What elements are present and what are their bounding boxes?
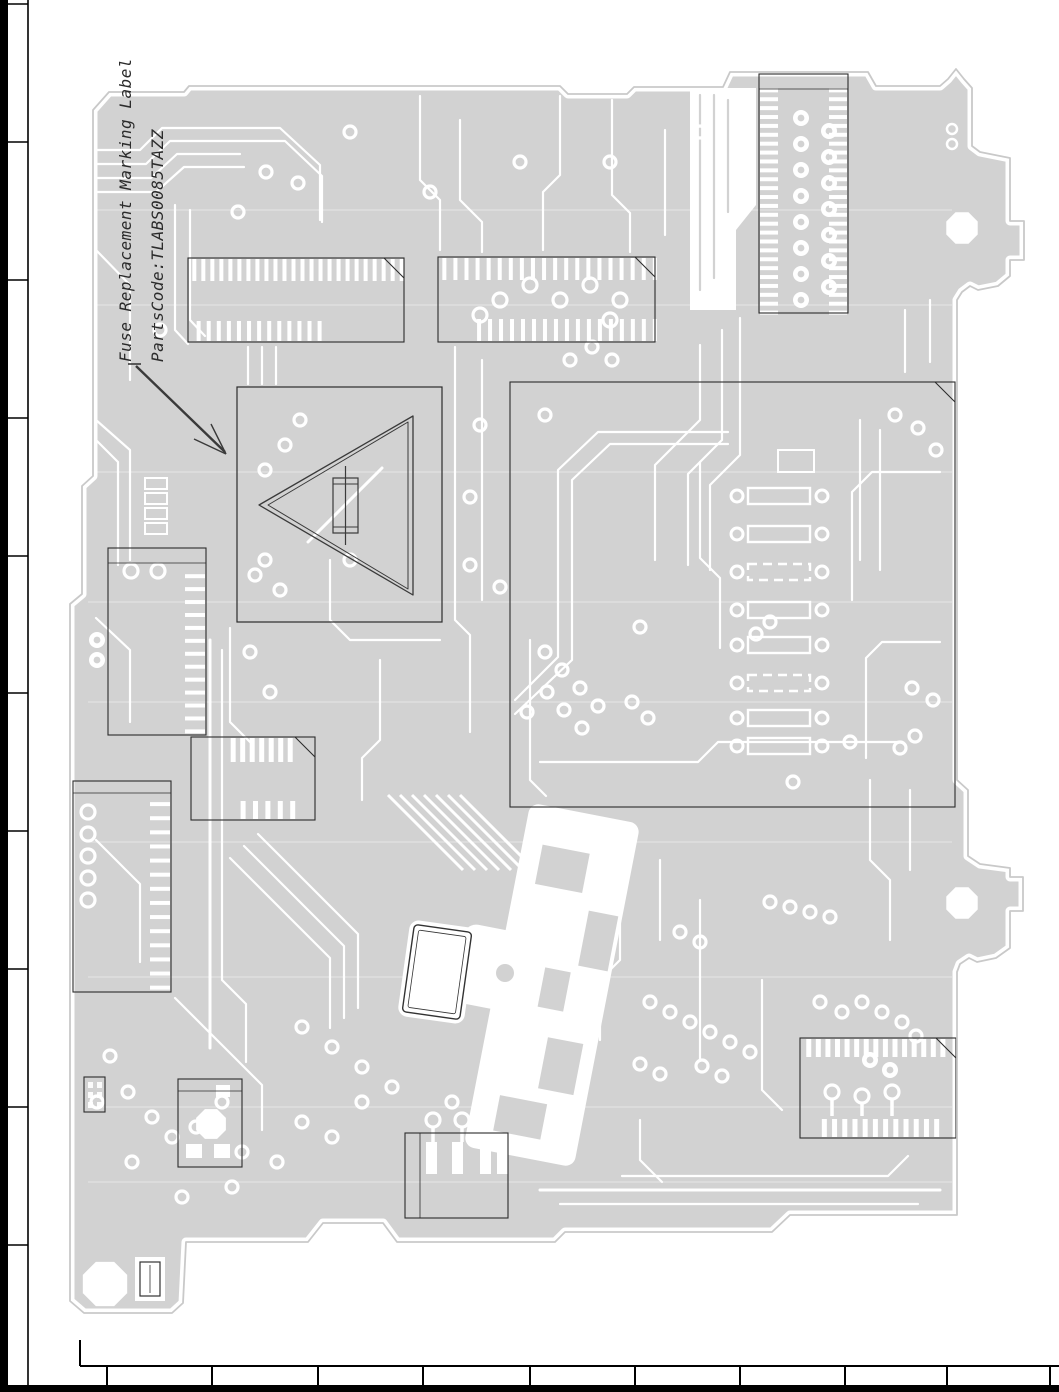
pin-pad bbox=[760, 239, 778, 243]
pin-pad bbox=[543, 319, 547, 341]
pad-hole bbox=[94, 657, 101, 664]
pin-pad bbox=[829, 284, 847, 288]
pin-pad bbox=[231, 738, 236, 762]
pin-pad bbox=[829, 275, 847, 279]
ic-pad bbox=[778, 450, 814, 472]
pin-pad bbox=[210, 259, 214, 281]
pin-pad bbox=[873, 1119, 878, 1137]
pin-pad bbox=[883, 1119, 888, 1137]
pin-pad bbox=[185, 652, 205, 656]
pin-pad bbox=[842, 1119, 847, 1137]
pin-pad bbox=[150, 830, 170, 834]
pin-pad bbox=[464, 258, 468, 280]
pin-pad bbox=[921, 1039, 926, 1057]
pin-pad bbox=[382, 259, 386, 281]
pin-pad bbox=[185, 600, 205, 604]
pin-pad bbox=[185, 587, 205, 591]
pin-pad bbox=[265, 801, 270, 819]
pin-pad bbox=[575, 258, 579, 280]
slot-pad bbox=[426, 1142, 437, 1174]
pin-pad bbox=[542, 258, 546, 280]
pin-pad bbox=[883, 1039, 888, 1057]
pin-pad bbox=[192, 259, 196, 281]
slot-pad bbox=[497, 1142, 508, 1174]
pin-pad bbox=[328, 259, 332, 281]
pin-pad bbox=[346, 259, 350, 281]
pin-pad bbox=[273, 259, 277, 281]
pin-pad bbox=[288, 738, 293, 762]
pin-pad bbox=[553, 258, 557, 280]
pad-hole bbox=[798, 193, 805, 200]
pin-pad bbox=[609, 258, 613, 280]
pin-pad bbox=[829, 239, 847, 243]
pin-pad bbox=[373, 259, 377, 281]
pin-pad bbox=[609, 319, 613, 341]
slot-pad bbox=[186, 1144, 202, 1158]
pin-pad bbox=[829, 222, 847, 226]
pin-pad bbox=[364, 259, 368, 281]
pin-pad bbox=[829, 257, 847, 261]
pin-pad bbox=[642, 319, 646, 341]
pin-pad bbox=[278, 801, 283, 819]
pin-pad bbox=[509, 258, 513, 280]
pin-pad bbox=[914, 1119, 919, 1137]
pin-pad bbox=[576, 319, 580, 341]
shield-hole bbox=[196, 1109, 226, 1139]
pin-pad bbox=[185, 613, 205, 617]
pin-pad bbox=[241, 801, 246, 819]
pin-pad bbox=[852, 1119, 857, 1137]
pin-pad bbox=[940, 1039, 945, 1057]
pin-pad bbox=[201, 259, 205, 281]
pin-pad bbox=[240, 738, 245, 762]
pin-pad bbox=[760, 284, 778, 288]
slot-pad bbox=[480, 1142, 491, 1174]
pad-hole bbox=[887, 1067, 894, 1074]
pin-pad bbox=[760, 266, 778, 270]
pin-pad bbox=[863, 1119, 868, 1137]
pin-pad bbox=[760, 115, 778, 119]
pin-pad bbox=[893, 1119, 898, 1137]
pin-pad bbox=[150, 986, 170, 990]
pin-pad bbox=[760, 213, 778, 217]
pin-pad bbox=[760, 222, 778, 226]
pin-pad bbox=[255, 259, 259, 281]
pin-pad bbox=[246, 259, 250, 281]
pin-pad bbox=[237, 321, 241, 341]
pin-pad bbox=[829, 159, 847, 163]
pin-pad bbox=[291, 259, 295, 281]
pin-pad bbox=[829, 213, 847, 217]
fuse-label-line2: PartsCode:TLABS0085TAZZ bbox=[148, 129, 167, 362]
pin-pad bbox=[499, 319, 503, 341]
mounting-hole bbox=[946, 212, 977, 243]
pin-pad bbox=[185, 704, 205, 708]
pin-pad bbox=[185, 729, 205, 733]
pin-pad bbox=[760, 204, 778, 208]
pin-pad bbox=[760, 257, 778, 261]
pin-pad bbox=[822, 1119, 827, 1137]
pin-pad bbox=[760, 97, 778, 101]
pin-pad bbox=[597, 258, 601, 280]
pin-pad bbox=[760, 106, 778, 110]
pin-pad bbox=[912, 1039, 917, 1057]
mounting-hole bbox=[83, 1262, 127, 1306]
pad-hole bbox=[867, 1057, 874, 1064]
pin-pad bbox=[150, 802, 170, 806]
pin-pad bbox=[892, 1039, 897, 1057]
slot-pad bbox=[214, 1144, 230, 1158]
pin-pad bbox=[259, 738, 264, 762]
pin-pad bbox=[308, 321, 312, 341]
pin-pad bbox=[829, 248, 847, 252]
pin-pad bbox=[150, 957, 170, 961]
pin-pad bbox=[829, 231, 847, 235]
pin-pad bbox=[760, 186, 778, 190]
pin-pad bbox=[185, 678, 205, 682]
pin-pad bbox=[319, 259, 323, 281]
pad-stack bbox=[145, 478, 167, 489]
pin-pad bbox=[253, 801, 258, 819]
pad-stack bbox=[145, 493, 167, 504]
pin-pad bbox=[829, 177, 847, 181]
pin-pad bbox=[760, 168, 778, 172]
pin-pad bbox=[829, 293, 847, 297]
pin-pad bbox=[806, 1039, 811, 1057]
dash-pad bbox=[88, 1092, 93, 1098]
pin-pad bbox=[150, 972, 170, 976]
pin-pad bbox=[631, 319, 635, 341]
pin-pad bbox=[829, 115, 847, 119]
pin-pad bbox=[864, 1039, 869, 1057]
pin-pad bbox=[587, 319, 591, 341]
pin-pad bbox=[318, 321, 322, 341]
pin-pad bbox=[631, 258, 635, 280]
pin-pad bbox=[150, 943, 170, 947]
pin-pad bbox=[488, 319, 492, 341]
pin-pad bbox=[150, 873, 170, 877]
pin-pad bbox=[301, 259, 305, 281]
pin-pad bbox=[564, 258, 568, 280]
pin-pad bbox=[269, 738, 274, 762]
pad-hole bbox=[798, 219, 805, 226]
pin-pad bbox=[150, 859, 170, 863]
pad-hole bbox=[798, 271, 805, 278]
hole-pad bbox=[496, 964, 514, 982]
dash-pad bbox=[88, 1082, 93, 1088]
pin-pad bbox=[355, 259, 359, 281]
pin-pad bbox=[825, 1039, 830, 1057]
crystal-component bbox=[402, 924, 472, 1019]
pin-pad bbox=[829, 151, 847, 155]
pcb-pattern-diagram-page: Fuse Replacement Marking Label PartsCode… bbox=[0, 0, 1059, 1392]
pin-pad bbox=[150, 901, 170, 905]
pin-pad bbox=[219, 259, 223, 281]
pin-pad bbox=[565, 319, 569, 341]
pin-pad bbox=[228, 259, 232, 281]
pin-pad bbox=[829, 302, 847, 306]
pin-pad bbox=[297, 321, 301, 341]
pcb-board bbox=[70, 69, 1024, 1313]
pin-pad bbox=[829, 142, 847, 146]
pin-pad bbox=[185, 626, 205, 630]
frame-bottom-bar bbox=[0, 1385, 1059, 1392]
pin-pad bbox=[620, 319, 624, 341]
pin-pad bbox=[532, 319, 536, 341]
pin-pad bbox=[642, 258, 646, 280]
pad-hole bbox=[826, 154, 833, 161]
pin-pad bbox=[237, 259, 241, 281]
pin-pad bbox=[760, 133, 778, 137]
fuse-label-line1: Fuse Replacement Marking Label bbox=[116, 58, 135, 362]
mounting-hole bbox=[946, 887, 977, 918]
pin-pad bbox=[816, 1039, 821, 1057]
pin-pad bbox=[250, 738, 255, 762]
pin-pad bbox=[247, 321, 251, 341]
pin-pad bbox=[476, 258, 480, 280]
pin-pad bbox=[902, 1039, 907, 1057]
frame-left-bar bbox=[0, 0, 8, 1392]
pad-hole bbox=[798, 245, 805, 252]
pin-pad bbox=[310, 259, 314, 281]
pin-pad bbox=[760, 151, 778, 155]
pin-pad bbox=[185, 639, 205, 643]
pin-pad bbox=[873, 1039, 878, 1057]
pin-pad bbox=[217, 321, 221, 341]
pin-pad bbox=[760, 275, 778, 279]
pin-pad bbox=[257, 321, 261, 341]
pin-pad bbox=[185, 716, 205, 720]
pin-pad bbox=[498, 258, 502, 280]
pin-pad bbox=[760, 195, 778, 199]
pin-pad bbox=[487, 258, 491, 280]
pad-hole bbox=[798, 297, 805, 304]
pin-pad bbox=[620, 258, 624, 280]
pin-pad bbox=[554, 319, 558, 341]
pin-pad bbox=[150, 915, 170, 919]
pad-stack bbox=[145, 508, 167, 519]
pin-pad bbox=[521, 319, 525, 341]
pin-pad bbox=[185, 574, 205, 578]
pin-pad bbox=[829, 168, 847, 172]
pin-pad bbox=[267, 321, 271, 341]
pin-pad bbox=[760, 302, 778, 306]
pin-pad bbox=[829, 204, 847, 208]
pin-pad bbox=[337, 259, 341, 281]
dash-pad bbox=[97, 1102, 102, 1108]
pin-pad bbox=[760, 231, 778, 235]
slot-pad bbox=[452, 1142, 463, 1174]
pin-pad bbox=[207, 321, 211, 341]
pin-pad bbox=[934, 1119, 939, 1137]
pin-pad bbox=[453, 258, 457, 280]
pin-pad bbox=[197, 321, 201, 341]
pin-pad bbox=[442, 258, 446, 280]
pin-pad bbox=[829, 97, 847, 101]
dash-pad bbox=[97, 1092, 102, 1098]
pin-pad bbox=[227, 321, 231, 341]
pad-stack bbox=[145, 523, 167, 534]
pin-pad bbox=[185, 691, 205, 695]
pad-hole bbox=[94, 637, 101, 644]
pin-pad bbox=[150, 844, 170, 848]
pin-pad bbox=[832, 1119, 837, 1137]
pin-pad bbox=[829, 106, 847, 110]
pin-pad bbox=[290, 801, 295, 819]
pin-pad bbox=[520, 258, 524, 280]
pin-pad bbox=[598, 319, 602, 341]
pin-pad bbox=[760, 293, 778, 297]
dash-pad bbox=[97, 1082, 102, 1088]
pin-pad bbox=[282, 259, 286, 281]
pin-pad bbox=[829, 266, 847, 270]
pin-pad bbox=[854, 1039, 859, 1057]
pin-pad bbox=[931, 1039, 936, 1057]
pin-pad bbox=[829, 195, 847, 199]
pcb-pattern-diagram: Fuse Replacement Marking Label PartsCode… bbox=[0, 0, 1059, 1392]
pin-pad bbox=[835, 1039, 840, 1057]
pin-pad bbox=[760, 159, 778, 163]
pin-pad bbox=[277, 321, 281, 341]
pin-pad bbox=[150, 816, 170, 820]
pin-pad bbox=[264, 259, 268, 281]
pin-pad bbox=[150, 929, 170, 933]
pad-hole bbox=[798, 141, 805, 148]
pin-pad bbox=[391, 259, 395, 281]
pin-pad bbox=[760, 142, 778, 146]
pin-pad bbox=[510, 319, 514, 341]
pad-hole bbox=[798, 167, 805, 174]
pin-pad bbox=[150, 887, 170, 891]
pin-pad bbox=[845, 1039, 850, 1057]
pin-pad bbox=[760, 177, 778, 181]
pin-pad bbox=[829, 124, 847, 128]
pad-hole bbox=[798, 115, 805, 122]
pin-pad bbox=[829, 133, 847, 137]
pin-pad bbox=[287, 321, 291, 341]
dash-pad bbox=[88, 1102, 93, 1108]
pin-pad bbox=[185, 665, 205, 669]
pin-pad bbox=[278, 738, 283, 762]
pin-pad bbox=[904, 1119, 909, 1137]
pin-pad bbox=[924, 1119, 929, 1137]
pin-pad bbox=[829, 186, 847, 190]
pin-pad bbox=[760, 248, 778, 252]
pin-pad bbox=[760, 124, 778, 128]
